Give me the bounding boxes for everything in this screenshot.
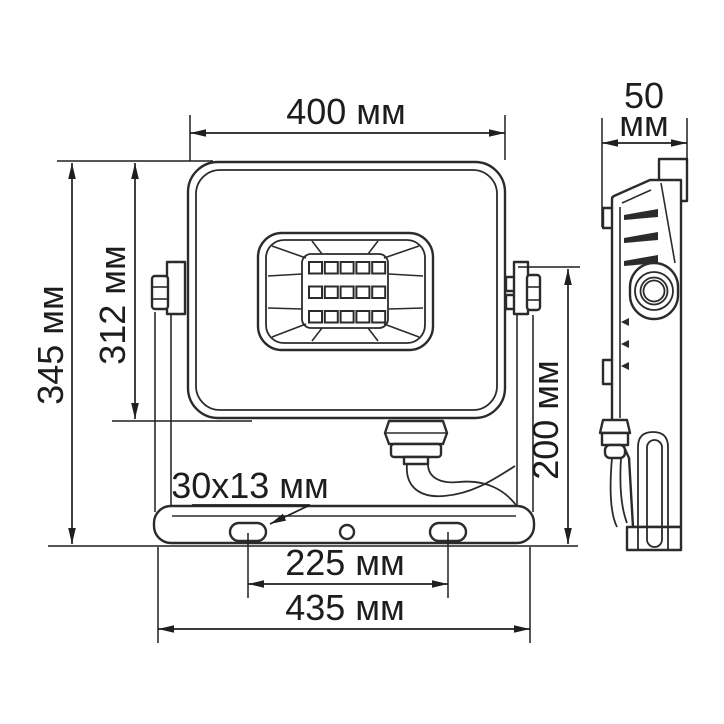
dim-label-bracket-height: 200 мм [525,360,566,480]
cable-gland [385,421,447,464]
led-grid [309,262,385,323]
pivot-bolt-right [506,262,540,314]
cable-gland-side [600,420,630,527]
dim-label-mount-slot: 30x13 мм [171,465,329,506]
pivot-bolt-left [152,262,185,314]
dim-slot-spacing: 225 мм [248,542,448,584]
pivot-knob-side [630,263,678,319]
dim-total-height: 345 мм [30,163,72,544]
dim-body-height: 312 мм [92,163,135,419]
dim-label-total-height: 345 мм [30,285,71,405]
floodlight-dimension-drawing: 400 мм 50 мм 345 мм 312 мм 200 мм 30x13 … [0,0,724,724]
dim-label-body-height: 312 мм [92,245,133,365]
dim-bracket-width: 435 мм [158,587,530,629]
power-cable [407,464,516,505]
dim-label-bracket-width: 435 мм [285,587,405,628]
mount-hole-center [340,525,354,539]
dim-front-width: 400 мм [190,91,505,133]
dim-label-slot-spacing: 225 мм [285,542,405,583]
dim-label-front-width: 400 мм [286,91,406,132]
drawing-canvas: 400 мм 50 мм 345 мм 312 мм 200 мм 30x13 … [0,0,724,724]
dim-label-depth-unit: мм [619,103,669,144]
mounting-bracket-foot [154,506,534,543]
led-window [258,233,433,350]
dim-depth: 50 мм [602,75,687,144]
side-view [600,159,687,550]
